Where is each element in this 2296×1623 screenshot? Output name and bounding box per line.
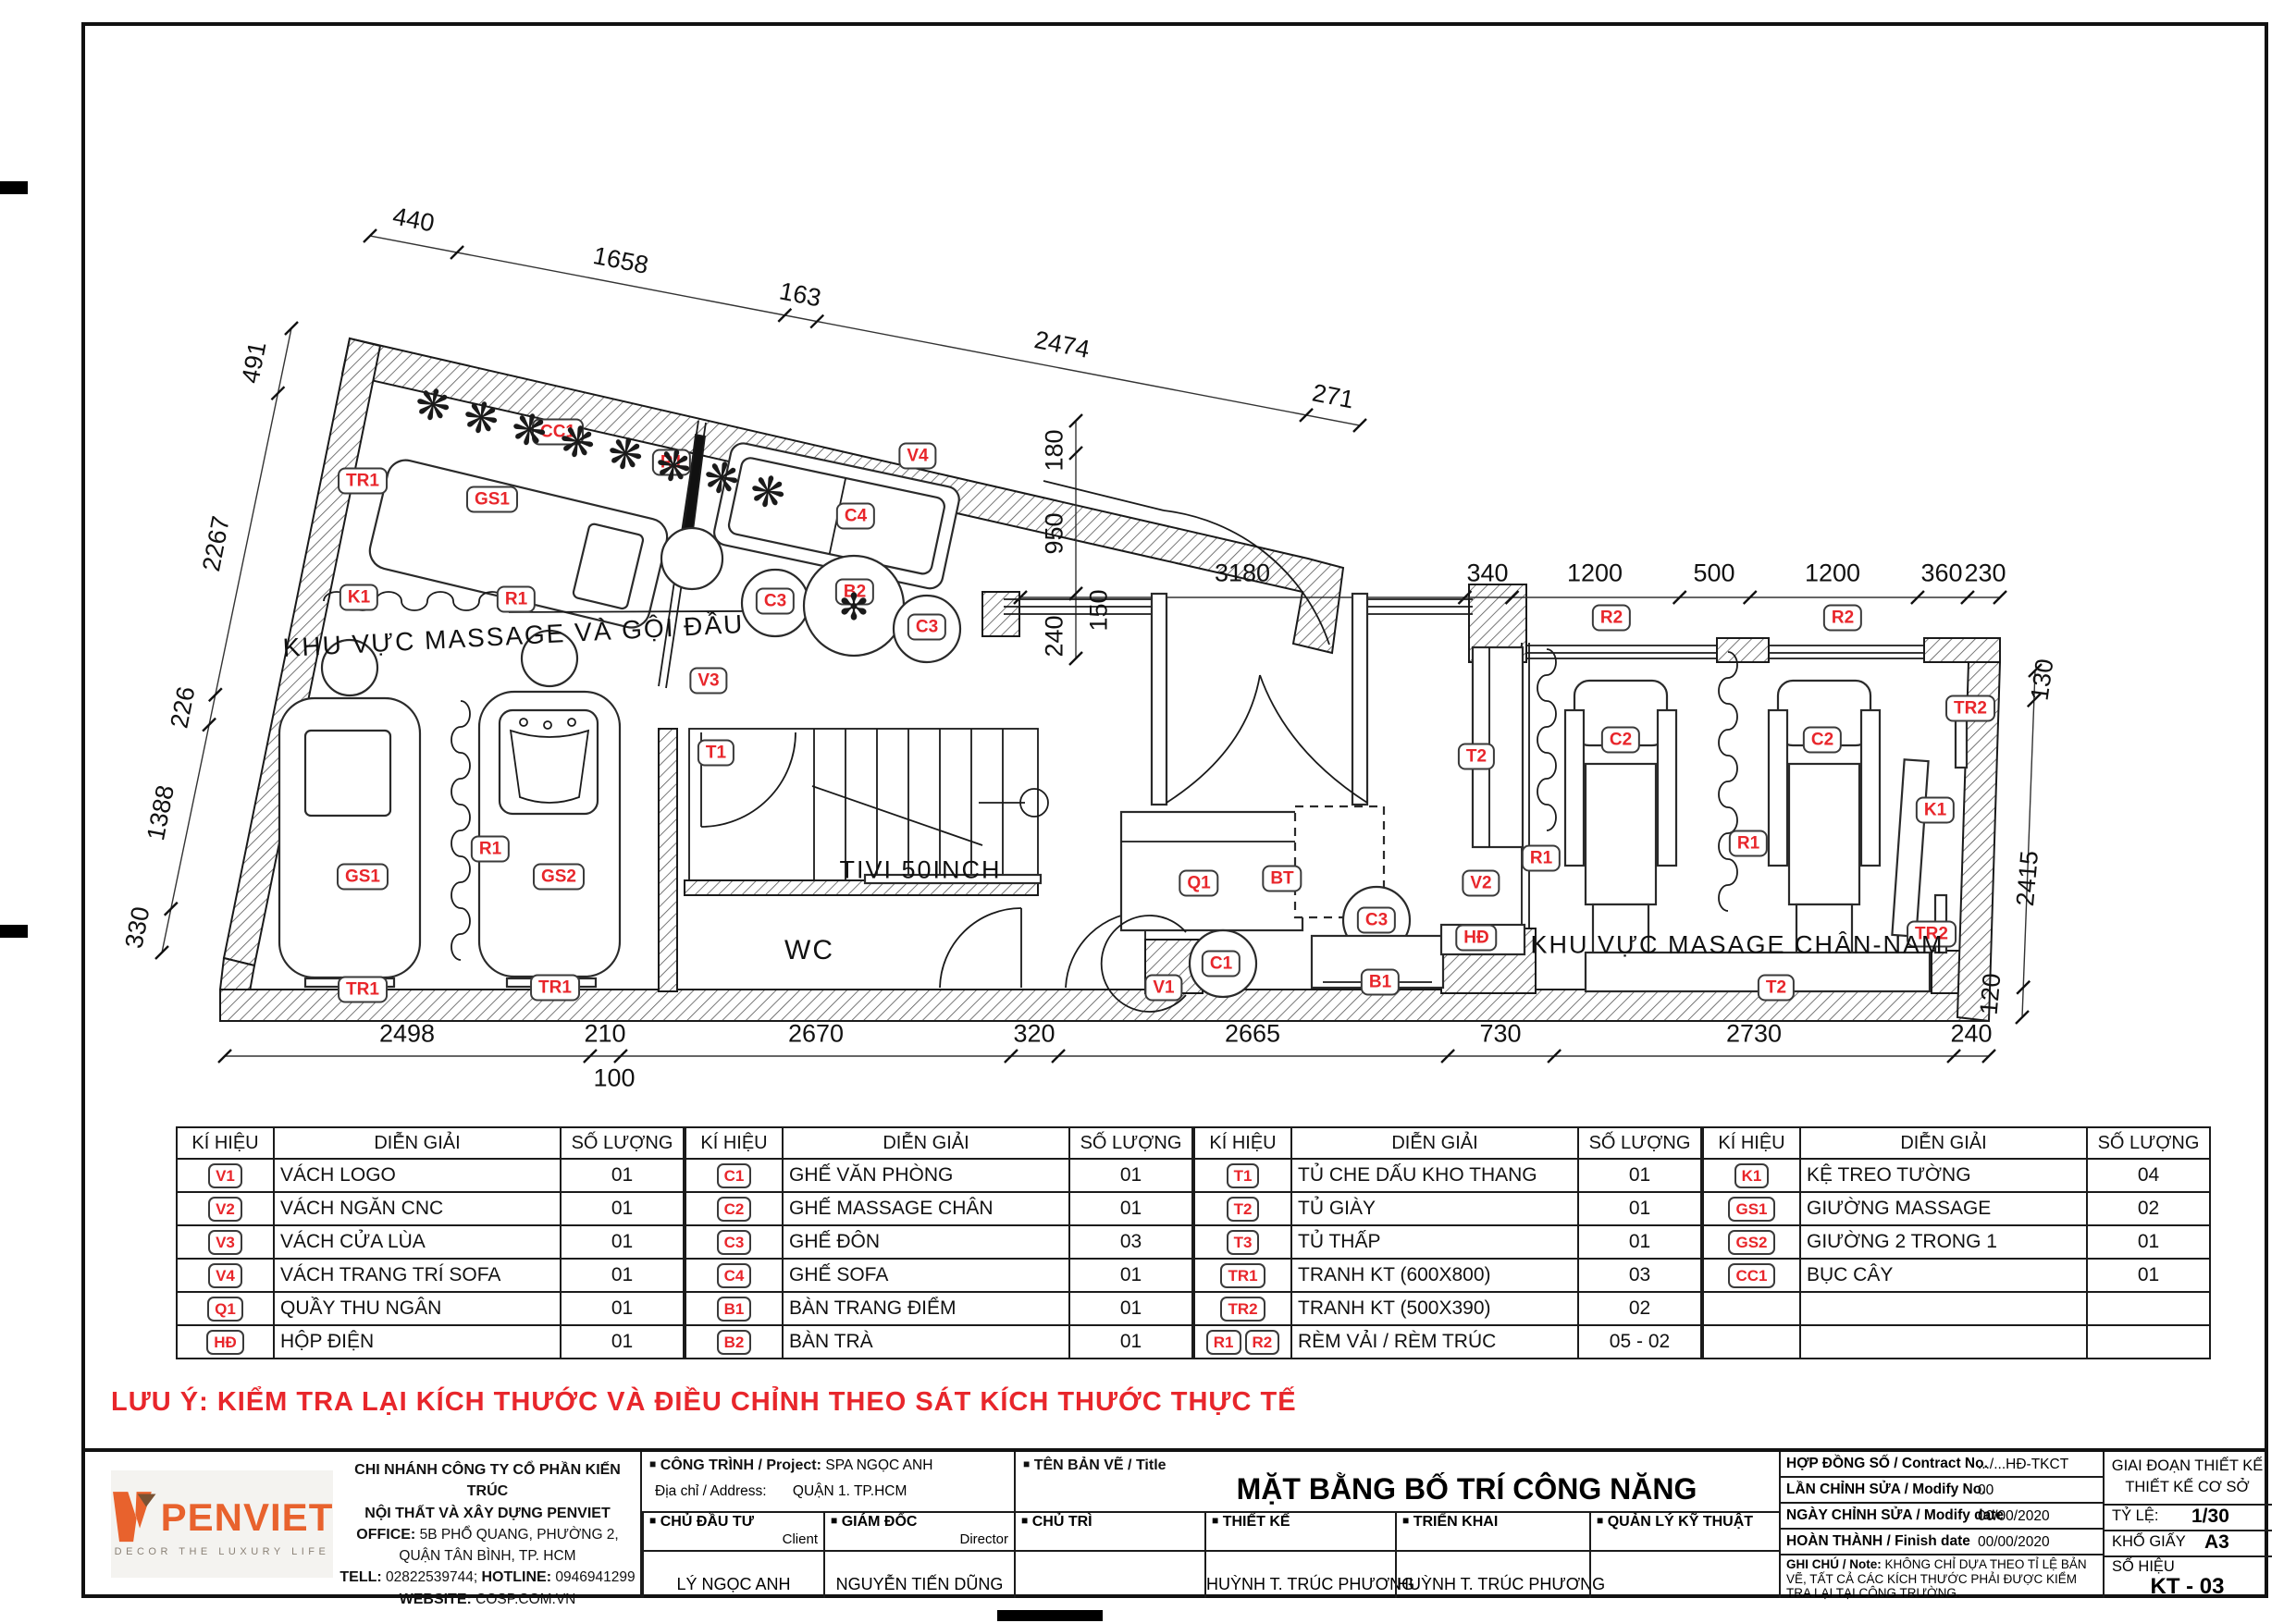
company-logo: PENVIET DECOR THE LUXURY LIFE bbox=[111, 1470, 333, 1578]
ghichu-label: GHI CHÚ / Note: bbox=[1786, 1557, 1882, 1571]
brand-tagline: DECOR THE LUXURY LIFE bbox=[115, 1546, 330, 1557]
contract-row: NGÀY CHỈNH SỬA / Modify date00/00/2020 bbox=[1779, 1504, 2103, 1530]
person-role-label: ■ CHỦ ĐẦU TƯ bbox=[649, 1514, 754, 1531]
door-jamb-left bbox=[1152, 594, 1167, 805]
legend-quantity: 01 bbox=[1578, 1159, 1701, 1192]
legend-symbol-chip: V2 bbox=[208, 1197, 242, 1222]
tel-label: TELL: bbox=[339, 1569, 381, 1585]
legend-description: KỆ TREO TƯỜNG bbox=[1800, 1159, 2087, 1192]
legend-quantity: 01 bbox=[1069, 1192, 1192, 1225]
person-role-label: ■ GIÁM ĐỐC bbox=[831, 1514, 917, 1531]
legend-row bbox=[1703, 1292, 2210, 1325]
person-role-label: ■ THIẾT KẾ bbox=[1212, 1514, 1290, 1531]
legend-symbol-chip: Q1 bbox=[207, 1297, 243, 1322]
legend-row: B1BÀN TRANG ĐIỂM01 bbox=[685, 1292, 1192, 1325]
floor-plan-drawing bbox=[0, 0, 2296, 1623]
legend-group: KÍ HIỆUDIỄN GIẢISỐ LƯỢNGK1KỆ TREO TƯỜNG0… bbox=[1702, 1126, 2211, 1359]
legend-row: V2VÁCH NGĂN CNC01 bbox=[177, 1192, 684, 1225]
legend-row: GS2GIƯỜNG 2 TRONG 101 bbox=[1703, 1225, 2210, 1259]
legend-row: B2BÀN TRÀ01 bbox=[685, 1325, 1192, 1359]
picture-frame-1 bbox=[1956, 710, 1967, 768]
legend-quantity: 01 bbox=[1069, 1292, 1192, 1325]
legend-header: DIỄN GIẢI bbox=[274, 1127, 561, 1159]
massage-bed-tilted bbox=[366, 457, 722, 632]
legend-symbol-chip: C3 bbox=[717, 1230, 752, 1255]
legend-description: TỦ THẤP bbox=[1291, 1225, 1578, 1259]
contract-label: HOÀN THÀNH / Finish date bbox=[1786, 1533, 1970, 1550]
person-name: HUỲNH T. TRÚC PHƯƠNG bbox=[1206, 1575, 1395, 1594]
legend-symbol-chip: C2 bbox=[717, 1197, 752, 1222]
foot-massage-chair-1 bbox=[1565, 681, 1676, 967]
legend-description: TỦ CHE DẤU KHO THANG bbox=[1291, 1159, 1578, 1192]
legend-header: KÍ HIỆU bbox=[177, 1127, 274, 1159]
legend-description: TRANH KT (600X800) bbox=[1291, 1259, 1578, 1292]
revision-note: LƯU Ý: KIỂM TRA LẠI KÍCH THƯỚC VÀ ĐIỀU C… bbox=[111, 1387, 1297, 1418]
legend-description: RÈM VẢI / RÈM TRÚC bbox=[1291, 1325, 1578, 1359]
person-role-label: ■ CHỦ TRÌ bbox=[1021, 1514, 1092, 1531]
legend-symbol-chip: GS2 bbox=[1728, 1230, 1774, 1255]
legend-description: HỘP ĐIỆN bbox=[274, 1325, 561, 1359]
legend-description: GHẾ ĐÔN bbox=[783, 1225, 1069, 1259]
person-cell: ■ TRIỂN KHAIHUỲNH T. TRÚC PHƯƠNG bbox=[1395, 1511, 1589, 1598]
legend-header: DIỄN GIẢI bbox=[1800, 1127, 2087, 1159]
person-cell: ■ CHỦ TRÌ bbox=[1014, 1511, 1204, 1598]
legend-quantity: 02 bbox=[1578, 1292, 1701, 1325]
legend-description: VÁCH CỬA LÙA bbox=[274, 1225, 561, 1259]
legend-quantity bbox=[2087, 1325, 2210, 1359]
curtain-wave bbox=[1719, 652, 1737, 911]
legend-description: BÀN TRÀ bbox=[783, 1325, 1069, 1359]
contract-row: HỢP ĐỒNG SỐ / Contract No..../...HĐ-TKCT bbox=[1779, 1452, 2103, 1478]
legend-quantity: 01 bbox=[1069, 1325, 1192, 1359]
legend-row: C1GHẾ VĂN PHÒNG01 bbox=[685, 1159, 1192, 1192]
wall-shelf bbox=[1892, 759, 1928, 936]
legend-quantity: 01 bbox=[1578, 1192, 1701, 1225]
legend-quantity: 03 bbox=[1578, 1259, 1701, 1292]
paper-cell: KHỔ GIẤY A3 bbox=[2103, 1530, 2272, 1555]
stage-cell: GIAI ĐOẠN THIẾT KẾ THIẾT KẾ CƠ SỞ bbox=[2103, 1452, 2272, 1504]
contract-row: LẦN CHỈNH SỬA / Modify No.00 bbox=[1779, 1478, 2103, 1504]
legend-description: QUẦY THU NGÂN bbox=[274, 1292, 561, 1325]
legend-quantity: 03 bbox=[1069, 1225, 1192, 1259]
company-line1: CHI NHÁNH CÔNG TY CỔ PHẦN KIẾN TRÚC bbox=[354, 1462, 621, 1499]
stage-line2: THIẾT KẾ CƠ SỞ bbox=[2103, 1479, 2272, 1496]
curtain-wave bbox=[1537, 649, 1556, 830]
legend-row: R1R2RÈM VẢI / RÈM TRÚC05 - 02 bbox=[1194, 1325, 1701, 1359]
person-cell: ■ GIÁM ĐỐCDirectorNGUYỄN TIẾN DŨNG bbox=[823, 1511, 1014, 1598]
pillar-rightwing-right bbox=[1924, 638, 2000, 662]
legend-quantity: 05 - 02 bbox=[1578, 1325, 1701, 1359]
person-role-label: ■ QUẢN LÝ KỸ THUẬT bbox=[1597, 1514, 1753, 1531]
contract-value: 00/00/2020 bbox=[1978, 1508, 2050, 1525]
legend-symbol-chip: HĐ bbox=[206, 1330, 244, 1355]
legend-header: KÍ HIỆU bbox=[685, 1127, 783, 1159]
door-jamb-right bbox=[1352, 594, 1367, 805]
legend-quantity: 01 bbox=[561, 1259, 684, 1292]
legend-symbol-chip: TR1 bbox=[1220, 1263, 1265, 1288]
contract-label: LẦN CHỈNH SỬA / Modify No. bbox=[1786, 1482, 1986, 1498]
legend-symbol-chip: GS1 bbox=[1728, 1197, 1774, 1222]
legend-quantity: 04 bbox=[2087, 1159, 2210, 1192]
legend-symbol-chip: C4 bbox=[717, 1263, 752, 1288]
title-block: PENVIET DECOR THE LUXURY LIFE CHI NHÁNH … bbox=[81, 1448, 2268, 1598]
legend-symbol-chip: V4 bbox=[208, 1263, 242, 1288]
legend-symbol-chip: T2 bbox=[1227, 1197, 1260, 1222]
legend-row: CC1BỤC CÂY01 bbox=[1703, 1259, 2210, 1292]
legend-quantity: 01 bbox=[2087, 1225, 2210, 1259]
legend-symbol-chip: R2 bbox=[1245, 1330, 1280, 1355]
hotline-label: HOTLINE: bbox=[482, 1569, 552, 1585]
contract-label: NGÀY CHỈNH SỬA / Modify date bbox=[1786, 1507, 2004, 1524]
legend-row: T2TỦ GIÀY01 bbox=[1194, 1192, 1701, 1225]
legend-row: V1VÁCH LOGO01 bbox=[177, 1159, 684, 1192]
legend-table: KÍ HIỆUDIỄN GIẢISỐ LƯỢNGV1VÁCH LOGO01V2V… bbox=[176, 1126, 2211, 1359]
person-name: LÝ NGỌC ANH bbox=[644, 1575, 823, 1594]
legend-row: V3VÁCH CỬA LÙA01 bbox=[177, 1225, 684, 1259]
contract-value: 00 bbox=[1978, 1482, 1994, 1499]
address-label: Địa chỉ / Address: bbox=[655, 1483, 767, 1499]
legend-row: C2GHẾ MASSAGE CHÂN01 bbox=[685, 1192, 1192, 1225]
office-address1: 5B PHỔ QUANG, PHƯỜNG 2, bbox=[420, 1527, 619, 1543]
legend-symbol-chip: B1 bbox=[717, 1297, 752, 1322]
legend-description: VÁCH NGĂN CNC bbox=[274, 1192, 561, 1225]
legend-group: KÍ HIỆUDIỄN GIẢISỐ LƯỢNGV1VÁCH LOGO01V2V… bbox=[176, 1126, 685, 1359]
paper-label: KHỔ GIẤY bbox=[2112, 1533, 2186, 1551]
legend-row: T3TỦ THẤP01 bbox=[1194, 1225, 1701, 1259]
drawing-title-cell: ■ TÊN BẢN VẼ / Title MẶT BẰNG BỐ TRÍ CÔN… bbox=[1016, 1452, 1779, 1511]
website-value: COSP.COM.VN bbox=[475, 1592, 575, 1607]
legend-quantity: 01 bbox=[561, 1225, 684, 1259]
legend-description: GIƯỜNG MASSAGE bbox=[1800, 1192, 2087, 1225]
company-info: CHI NHÁNH CÔNG TY CỔ PHẦN KIẾN TRÚC NỘI … bbox=[337, 1459, 638, 1610]
person-role-label: ■ TRIỂN KHAI bbox=[1402, 1514, 1498, 1531]
person-role-sub: Director bbox=[959, 1531, 1008, 1547]
wall-stair-divider bbox=[659, 729, 677, 991]
legend-group: KÍ HIỆUDIỄN GIẢISỐ LƯỢNGT1TỦ CHE DẤU KHO… bbox=[1193, 1126, 1702, 1359]
wc-door-arc bbox=[940, 908, 1021, 988]
legend-header: KÍ HIỆU bbox=[1194, 1127, 1291, 1159]
legend-symbol-chip: V1 bbox=[208, 1163, 242, 1188]
titleblock-note-cell: GHI CHÚ / Note: KHÔNG CHỈ DỰA THEO TỈ LỆ… bbox=[1779, 1555, 2103, 1598]
legend-symbol-chip: R1 bbox=[1206, 1330, 1241, 1355]
legend-header: SỐ LƯỢNG bbox=[1069, 1127, 1192, 1159]
foot-massage-chair-2 bbox=[1769, 681, 1880, 967]
contract-value: .../...HĐ-TKCT bbox=[1978, 1457, 2068, 1473]
legend-row: TR2TRANH KT (500X390)02 bbox=[1194, 1292, 1701, 1325]
washing-bed-2 bbox=[479, 631, 620, 987]
legend-row: GS1GIƯỜNG MASSAGE02 bbox=[1703, 1192, 2210, 1225]
hotline-value: 0946941299 bbox=[555, 1569, 635, 1585]
curtain-wave bbox=[451, 701, 470, 960]
legend-symbol-chip: K1 bbox=[1734, 1163, 1770, 1188]
legend-header: SỐ LƯỢNG bbox=[1578, 1127, 1701, 1159]
legend-symbol-chip: T1 bbox=[1227, 1163, 1260, 1188]
legend-symbol-chip: C1 bbox=[717, 1163, 752, 1188]
stage-line1: GIAI ĐOẠN THIẾT KẾ bbox=[2103, 1457, 2272, 1475]
wall-bottom bbox=[220, 990, 1989, 1021]
legend-quantity bbox=[2087, 1292, 2210, 1325]
address-value: QUẬN 1. TP.HCM bbox=[793, 1483, 907, 1499]
staircase bbox=[689, 729, 1048, 880]
legend-description: VÁCH TRANG TRÍ SOFA bbox=[274, 1259, 561, 1292]
paper-value: A3 bbox=[2204, 1531, 2229, 1554]
legend-header: DIỄN GIẢI bbox=[783, 1127, 1069, 1159]
scale-value: 1/30 bbox=[2191, 1506, 2229, 1528]
legend-symbol-chip: TR2 bbox=[1220, 1297, 1265, 1322]
double-door-leaf-left bbox=[1167, 675, 1260, 803]
legend-symbol-chip: V3 bbox=[208, 1230, 242, 1255]
legend-row: HĐHỘP ĐIỆN01 bbox=[177, 1325, 684, 1359]
legend-quantity: 01 bbox=[1069, 1159, 1192, 1192]
picture-frame-2 bbox=[1935, 895, 1946, 953]
sheet-number: KT - 03 bbox=[2103, 1574, 2272, 1600]
legend-quantity: 01 bbox=[561, 1159, 684, 1192]
tel-value: 02822539744; bbox=[386, 1569, 477, 1585]
legend-header: KÍ HIỆU bbox=[1703, 1127, 1800, 1159]
legend-row: Q1QUẦY THU NGÂN01 bbox=[177, 1292, 684, 1325]
legend-symbol-chip: B2 bbox=[717, 1330, 752, 1355]
legend-row: C3GHẾ ĐÔN03 bbox=[685, 1225, 1192, 1259]
person-cell: ■ CHỦ ĐẦU TƯClientLÝ NGỌC ANH bbox=[642, 1511, 823, 1598]
project-cell: ■ CÔNG TRÌNH / Project: SPA NGỌC ANH Địa… bbox=[642, 1452, 1016, 1511]
scale-label: TỶ LỆ: bbox=[2112, 1507, 2158, 1525]
legend-description: GHẾ MASSAGE CHÂN bbox=[783, 1192, 1069, 1225]
contract-value: 00/00/2020 bbox=[1978, 1534, 2050, 1551]
scale-cell: TỶ LỆ: 1/30 bbox=[2103, 1504, 2272, 1530]
corridor-windows bbox=[1004, 599, 1924, 658]
legend-quantity: 01 bbox=[561, 1325, 684, 1359]
legend-description: BÀN TRANG ĐIỂM bbox=[783, 1292, 1069, 1325]
legend-quantity: 01 bbox=[561, 1192, 684, 1225]
contract-row: HOÀN THÀNH / Finish date00/00/2020 bbox=[1779, 1530, 2103, 1555]
legend-description: TRANH KT (500X390) bbox=[1291, 1292, 1578, 1325]
legend-row: K1KỆ TREO TƯỜNG04 bbox=[1703, 1159, 2210, 1192]
legend-quantity: 01 bbox=[1578, 1225, 1701, 1259]
legend-description: BỤC CÂY bbox=[1800, 1259, 2087, 1292]
legend-header: SỐ LƯỢNG bbox=[561, 1127, 684, 1159]
legend-header: SỐ LƯỢNG bbox=[2087, 1127, 2210, 1159]
project-name: SPA NGỌC ANH bbox=[825, 1457, 932, 1473]
double-door-leaf-right bbox=[1260, 675, 1367, 803]
shoe-cabinet bbox=[1473, 647, 1523, 847]
curtain-wave bbox=[324, 592, 505, 610]
legend-row: TR1TRANH KT (600X800)03 bbox=[1194, 1259, 1701, 1292]
low-cabinet bbox=[1586, 953, 1930, 991]
legend-description bbox=[1800, 1292, 2087, 1325]
legend-row bbox=[1703, 1325, 2210, 1359]
legend-quantity: 01 bbox=[561, 1292, 684, 1325]
person-name: NGUYỄN TIẾN DŨNG bbox=[825, 1575, 1014, 1594]
contract-label: HỢP ĐỒNG SỐ / Contract No. bbox=[1786, 1456, 1988, 1472]
legend-quantity: 01 bbox=[1069, 1259, 1192, 1292]
person-name: HUỲNH T. TRÚC PHƯƠNG bbox=[1397, 1575, 1589, 1594]
legend-description: GHẾ SOFA bbox=[783, 1259, 1069, 1292]
office-label: OFFICE: bbox=[356, 1527, 415, 1543]
legend-description: TỦ GIÀY bbox=[1291, 1192, 1578, 1225]
website-label: WEBSITE: bbox=[400, 1592, 472, 1607]
drawing-sheet: 4401658163247427149122672261388330318034… bbox=[0, 0, 2296, 1623]
legend-description bbox=[1800, 1325, 2087, 1359]
legend-description: GHẾ VĂN PHÒNG bbox=[783, 1159, 1069, 1192]
drawing-title-label: TÊN BẢN VẼ / Title bbox=[1034, 1457, 1167, 1473]
penviet-v-icon bbox=[111, 1491, 161, 1544]
legend-description: VÁCH LOGO bbox=[274, 1159, 561, 1192]
brand-name: PENVIET bbox=[161, 1498, 334, 1537]
person-role-sub: Client bbox=[783, 1531, 818, 1547]
legend-symbol-chip: T3 bbox=[1227, 1230, 1260, 1255]
legend-row: V4VÁCH TRANG TRÍ SOFA01 bbox=[177, 1259, 684, 1292]
legend-group: KÍ HIỆUDIỄN GIẢISỐ LƯỢNGC1GHẾ VĂN PHÒNG0… bbox=[685, 1126, 1193, 1359]
legend-quantity: 02 bbox=[2087, 1192, 2210, 1225]
number-cell: SỐ HIỆU KT - 03 bbox=[2103, 1555, 2272, 1598]
legend-row: T1TỦ CHE DẤU KHO THANG01 bbox=[1194, 1159, 1701, 1192]
legend-description: GIƯỜNG 2 TRONG 1 bbox=[1800, 1225, 2087, 1259]
person-cell: ■ QUẢN LÝ KỸ THUẬT bbox=[1589, 1511, 1779, 1598]
pillar-rightwing-mid bbox=[1717, 638, 1769, 662]
tv-unit bbox=[865, 875, 1041, 883]
company-line2: NỘI THẤT VÀ XÂY DỰNG PENVIET bbox=[364, 1506, 610, 1521]
legend-row: C4GHẾ SOFA01 bbox=[685, 1259, 1192, 1292]
project-label: CÔNG TRÌNH / Project: bbox=[660, 1457, 821, 1473]
legend-symbol-chip: CC1 bbox=[1728, 1263, 1774, 1288]
drawing-title: MẶT BẰNG BỐ TRÍ CÔNG NĂNG bbox=[1154, 1472, 1779, 1506]
person-cell: ■ THIẾT KẾHUỲNH T. TRÚC PHƯƠNG bbox=[1204, 1511, 1395, 1598]
legend-quantity: 01 bbox=[2087, 1259, 2210, 1292]
legend-header: DIỄN GIẢI bbox=[1291, 1127, 1578, 1159]
office-address2: QUẬN TÂN BÌNH, TP. HCM bbox=[399, 1548, 575, 1564]
